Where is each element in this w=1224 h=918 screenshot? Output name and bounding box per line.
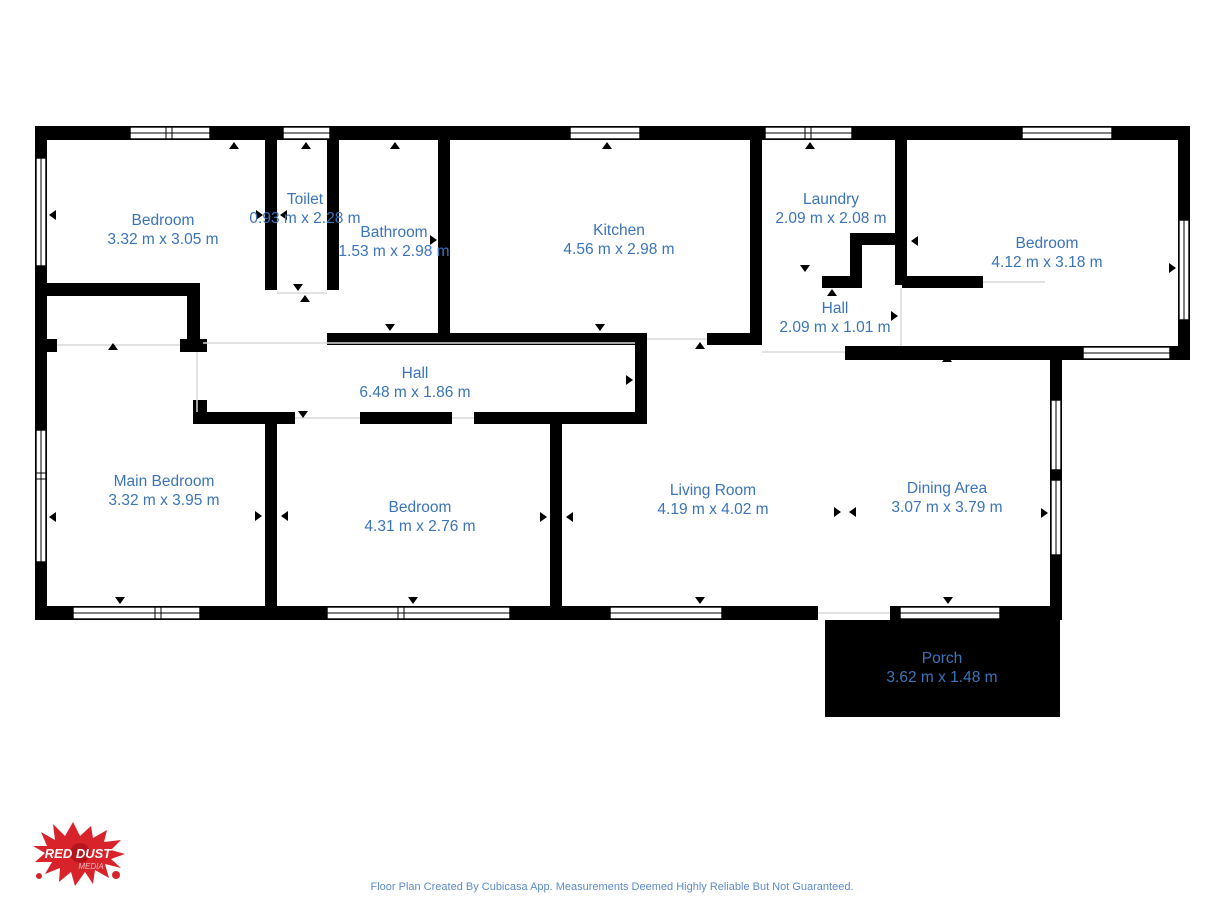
exterior-walls: [35, 126, 1190, 620]
logo-splatter-dot: [36, 873, 42, 879]
wall-segment: [822, 276, 862, 288]
wall-segment: [895, 140, 907, 285]
logo-splatter-dot: [112, 871, 120, 879]
interior-walls: [35, 140, 1062, 606]
porch-area: [825, 620, 1060, 717]
wall-segment: [193, 412, 295, 424]
door-markers: [49, 142, 1176, 604]
wall-segment: [902, 276, 983, 288]
wall-segment: [845, 346, 1062, 360]
wall-segment: [327, 140, 339, 290]
footer-disclaimer: Floor Plan Created By Cubicasa App. Meas…: [370, 881, 853, 893]
floor-plan-page: RED DUST MEDIA Bedroom 3.32 m x 3.05 m T…: [0, 0, 1224, 918]
wall-segment: [265, 140, 277, 290]
floor-plan-drawing: RED DUST MEDIA: [0, 0, 1224, 918]
logo-tagline-text: MEDIA: [78, 862, 103, 871]
wall-segment: [187, 283, 200, 345]
wall-segment: [35, 339, 57, 352]
wall-segment: [438, 140, 450, 333]
wall-segment: [635, 333, 647, 424]
wall-segment: [180, 339, 207, 352]
wall-segment: [265, 424, 277, 606]
logo-brand-text: RED DUST: [45, 846, 113, 861]
windows: [36, 127, 1189, 619]
red-dust-media-logo: RED DUST MEDIA: [33, 822, 125, 886]
wall-segment: [474, 412, 635, 424]
wall-segment: [360, 412, 452, 424]
wall-segment: [550, 424, 562, 606]
wall-segment: [35, 283, 200, 296]
